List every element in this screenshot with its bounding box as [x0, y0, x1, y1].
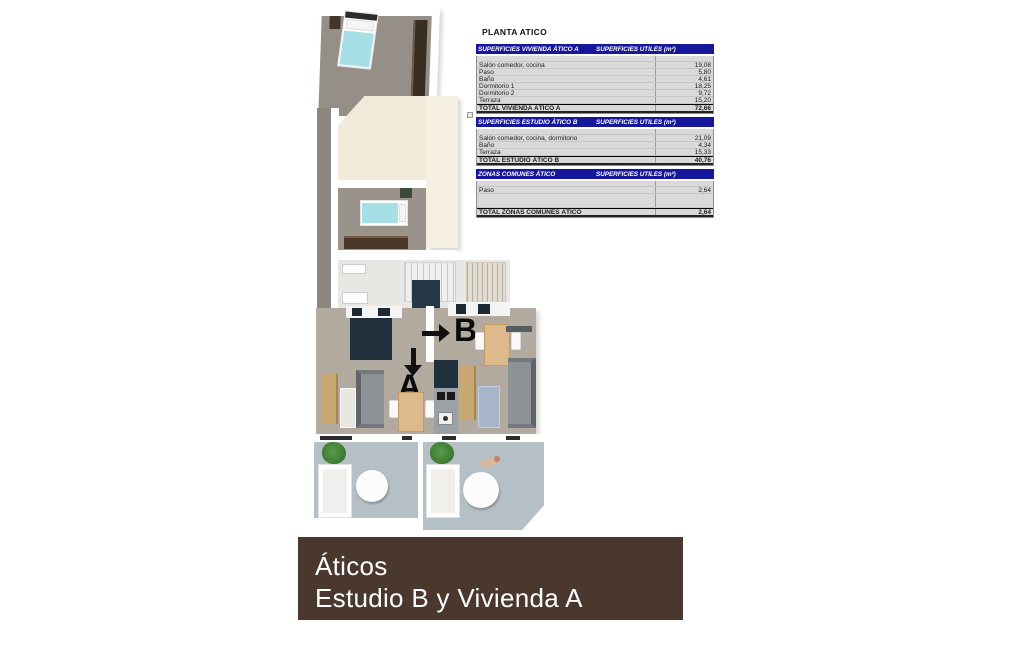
banner-line-2: Estudio B y Vivienda A — [315, 582, 683, 614]
table-row — [477, 194, 713, 208]
row-label: Salón comedor, cocina, dormitorio — [477, 135, 655, 142]
row-value: 5,80 — [655, 69, 713, 75]
table-total-row: TOTAL ZONAS COMUNES ÁTICO2,64 — [477, 208, 713, 217]
row-value: 21,09 — [655, 135, 713, 141]
row-value: 19,08 — [655, 62, 713, 68]
total-value: 40,76 — [655, 157, 713, 163]
person-head — [494, 456, 500, 462]
total-label: TOTAL ZONAS COMUNES ÁTICO — [477, 209, 655, 216]
single-bed — [360, 200, 408, 226]
living-right-wall — [536, 304, 543, 440]
lounger-cushion — [323, 469, 347, 513]
chair — [511, 332, 521, 350]
table-row: Baño4,61 — [477, 76, 713, 83]
single-bed-pillow — [399, 204, 406, 222]
total-value: 2,64 — [655, 209, 713, 215]
table-row: Paso2,64 — [477, 187, 713, 194]
single-bed-blanket — [362, 203, 398, 223]
page-title: PLANTA ATICO — [482, 27, 547, 37]
table-total-row: TOTAL ESTUDIO ÁTICO B40,76 — [477, 156, 713, 165]
terrace-table — [463, 472, 499, 508]
table-row: Salón comedor, cocina19,08 — [477, 62, 713, 69]
plant-icon — [322, 442, 346, 464]
table-body: Salón comedor, cocina19,08 Paso5,80 Baño… — [476, 56, 714, 114]
arrow-head — [439, 324, 450, 342]
dining-table-a — [398, 392, 424, 432]
row-label: Salón comedor, cocina — [477, 62, 655, 69]
table-row: Terraza15,33 — [477, 149, 713, 156]
person-figure — [478, 454, 502, 470]
bedroom2-top-wall — [338, 180, 426, 188]
table-row: Baño4,34 — [477, 142, 713, 149]
table-row: Dormitorio 118,25 — [477, 83, 713, 90]
row-label: Dormitorio 1 — [477, 83, 655, 90]
table-estudio-b: SUPERFICIES ESTUDIO ÁTICO B SUPERFICIES … — [476, 117, 714, 166]
table-vivienda-a: SUPERFICIES VIVIENDA ÁTICO A SUPERFICIES… — [476, 44, 714, 114]
oven-knob — [443, 416, 448, 421]
roof-section-right — [426, 96, 458, 248]
terrace-table — [356, 470, 388, 502]
shelf-row-left — [346, 306, 402, 318]
row-label: Paso — [477, 69, 655, 76]
wardrobe — [411, 20, 428, 100]
row-label: Baño — [477, 76, 655, 83]
cabinet-right — [460, 366, 476, 420]
marker-b: B — [454, 314, 477, 346]
storage-block — [350, 318, 392, 360]
row-label: Dormitorio 2 — [477, 90, 655, 97]
wardrobe2 — [344, 236, 408, 249]
table-header-title: SUPERFICIES VIVIENDA ÁTICO A — [476, 46, 596, 53]
rug-right — [478, 386, 500, 428]
nightstand — [329, 16, 340, 29]
table-header: ZONAS COMUNES ÁTICO SUPERFICIES UTILES (… — [476, 169, 714, 179]
row-value: 4,34 — [655, 142, 713, 148]
arrow-shaft — [422, 331, 440, 336]
row-label: Paso — [477, 187, 655, 194]
wall-shelf — [506, 326, 532, 332]
row-value: 9,72 — [655, 90, 713, 96]
staircase-right — [466, 262, 506, 304]
table-header-units: SUPERFICIES UTILES (m²) — [596, 46, 714, 53]
rug-left — [340, 388, 356, 428]
spreadsheet-artifact-icon — [467, 112, 473, 118]
title-banner: Áticos Estudio B y Vivienda A — [298, 537, 683, 620]
sun-lounger — [426, 464, 460, 518]
bed-pillows — [345, 19, 374, 32]
kitchen-unit — [434, 360, 458, 438]
hall-counter — [342, 264, 366, 274]
total-label: TOTAL ESTUDIO ÁTICO B — [477, 157, 655, 164]
table-zonas-comunes: ZONAS COMUNES ÁTICO SUPERFICIES UTILES (… — [476, 169, 714, 218]
table-header-units: SUPERFICIES UTILES (m²) — [596, 171, 714, 178]
table-body: Paso2,64 TOTAL ZONAS COMUNES ÁTICO2,64 — [476, 181, 714, 218]
sofa-right — [508, 358, 536, 428]
table-header-units: SUPERFICIES UTILES (m²) — [596, 119, 714, 126]
row-label: Terraza — [477, 97, 655, 104]
total-value: 72,66 — [655, 105, 713, 111]
window-slit — [442, 436, 456, 440]
row-value: 15,33 — [655, 149, 713, 155]
table-header-title: SUPERFICIES ESTUDIO ÁTICO B — [476, 119, 596, 126]
sofa-left — [356, 370, 384, 428]
arrow-right-icon — [422, 323, 450, 343]
stove-burner — [437, 392, 445, 400]
shelf-box-dark — [378, 308, 390, 316]
table-header: SUPERFICIES ESTUDIO ÁTICO B SUPERFICIES … — [476, 117, 714, 127]
kitchen-hood — [434, 360, 458, 388]
shelf-box-dark — [352, 308, 362, 316]
window-slit — [320, 436, 352, 440]
table-row: Dormitorio 29,72 — [477, 90, 713, 97]
table-header-title: ZONAS COMUNES ÁTICO — [476, 171, 596, 178]
table-row: Terraza15,20 — [477, 97, 713, 104]
sun-lounger — [318, 464, 352, 518]
bedroom2-mirror — [400, 188, 412, 198]
cabinet-left — [322, 374, 338, 424]
row-value: 2,64 — [655, 187, 713, 193]
row-label: Terraza — [477, 149, 655, 156]
plant-icon — [430, 442, 454, 464]
table-total-row: TOTAL VIVIENDA ÁTICO A72,66 — [477, 104, 713, 113]
shelf-box-dark — [478, 304, 490, 314]
arrow-shaft — [411, 348, 416, 366]
table-row: Paso5,80 — [477, 69, 713, 76]
table-header: SUPERFICIES VIVIENDA ÁTICO A SUPERFICIES… — [476, 44, 714, 54]
terrace-divider-wall — [418, 442, 423, 518]
table-body: Salón comedor, cocina, dormitorio21,09 B… — [476, 129, 714, 166]
hall-top-wall — [338, 250, 458, 260]
row-value: 4,61 — [655, 76, 713, 82]
window-slit — [402, 436, 412, 440]
row-value: 18,25 — [655, 83, 713, 89]
row-label: Baño — [477, 142, 655, 149]
stove-burner — [447, 392, 455, 400]
total-label: TOTAL VIVIENDA ÁTICO A — [477, 105, 655, 112]
row-value: 15,20 — [655, 97, 713, 103]
window-slit — [506, 436, 520, 440]
table-row: Salón comedor, cocina, dormitorio21,09 — [477, 135, 713, 142]
left-outer-wall — [310, 108, 317, 313]
banner-line-1: Áticos — [315, 550, 683, 582]
lounger-cushion — [431, 469, 455, 513]
bed-blanket — [339, 30, 373, 67]
corridor-strip — [317, 108, 331, 308]
hall-fixture — [342, 292, 368, 304]
